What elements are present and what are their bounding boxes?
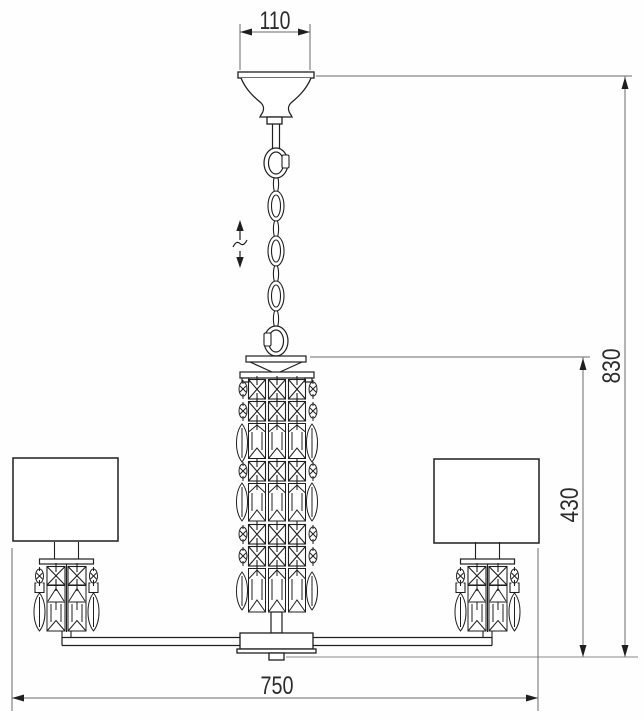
arrow-down-icon [622,645,629,657]
crystal-grid [249,376,306,612]
crystal-column [237,356,318,633]
left-pendant-assembly [34,542,99,638]
quick-link-top [264,148,289,178]
canopy [238,72,314,124]
arrow-up-icon [580,358,587,370]
overall-height-label: 830 [598,349,626,384]
column-stem [271,612,282,633]
arrow-left-icon [240,29,252,36]
arrow-up-icon [622,77,629,89]
arrow-right-icon [298,29,310,36]
body-height-label: 430 [556,488,584,523]
suspension-chain [264,124,289,356]
arrow-down-icon [580,645,587,657]
height-adjust-arrow-icon [233,220,247,268]
quick-link-bottom [264,326,288,356]
column-canopy-plate [246,356,306,372]
left-arm [62,638,240,646]
right-lamp-shade [434,459,539,543]
center-hub [237,633,316,660]
canopy-width-label: 110 [260,7,291,35]
chandelier-technical-drawing: 110 830 430 750 [0,0,644,720]
arrow-left-icon [12,695,24,702]
drawing-canvas: 110 830 430 750 [0,0,644,720]
right-pendant-assembly [455,542,520,638]
overall-width-label: 750 [261,672,294,700]
left-lamp-shade [13,458,118,541]
arrow-right-icon [526,695,538,702]
right-arm [313,638,492,646]
